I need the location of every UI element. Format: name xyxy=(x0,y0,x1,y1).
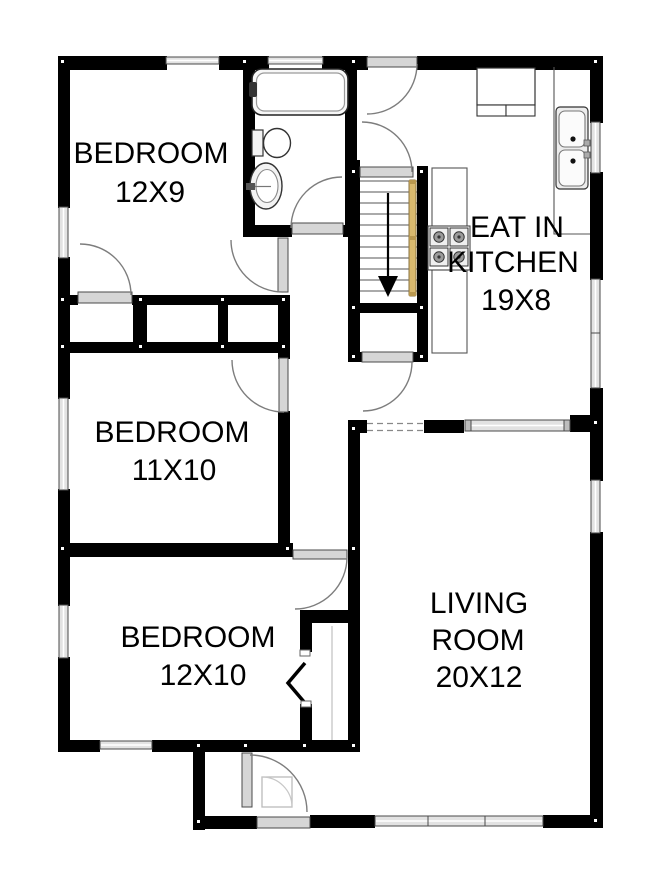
down-arrow-icon xyxy=(378,193,398,297)
bedroom-middle-size: 11X10 xyxy=(132,454,217,487)
window-bedroom-bottom-left xyxy=(59,605,68,658)
upper-cabinet xyxy=(477,68,535,116)
bathroom-door xyxy=(291,177,343,234)
living-room-size: 20X12 xyxy=(436,661,523,694)
handrail xyxy=(409,180,416,296)
bifold-closet-door xyxy=(288,650,311,707)
kitchen-label-line1: EAT IN xyxy=(470,211,564,244)
toilet xyxy=(252,129,291,158)
window-living-right xyxy=(591,480,600,533)
bedroom-top-entry-door xyxy=(231,238,288,292)
bedroom-bottom-size: 12X10 xyxy=(160,659,247,692)
bedroom-bottom-door xyxy=(293,550,347,609)
dashed-opening-hall-living xyxy=(367,424,424,431)
bedroom-top-label: BEDROOM xyxy=(73,137,228,170)
bedroom-top-size: 12X9 xyxy=(115,176,185,209)
living-room-label-line1: LIVING xyxy=(430,587,528,620)
double-kitchen-sink xyxy=(556,107,590,189)
opening-kitchen-living xyxy=(465,420,570,431)
bedroom-top-closet-door xyxy=(78,244,132,303)
bedroom-bottom-label: BEDROOM xyxy=(120,621,275,654)
window-bedroom-top-1 xyxy=(166,57,219,64)
window-bedroom-top-left xyxy=(59,207,68,258)
staircase-down xyxy=(332,180,417,740)
window-living-bottom xyxy=(375,816,543,826)
kitchen-size: 19X8 xyxy=(481,284,551,317)
window-dining-right xyxy=(591,279,600,388)
window-bedroom-bottom xyxy=(100,741,152,749)
kitchen-label-line2: KITCHEN xyxy=(447,246,579,279)
back-door xyxy=(367,57,417,114)
living-room-label-line2: ROOM xyxy=(431,624,524,657)
window-kitchen-right xyxy=(591,122,600,173)
floor-plan-drawing: BEDROOM 12X9 BEDROOM 11X10 BEDROOM 12X10… xyxy=(0,0,659,890)
bathroom-fixtures xyxy=(246,69,348,209)
window-bathroom xyxy=(268,57,323,64)
bathtub xyxy=(249,69,348,115)
bedroom-middle-label: BEDROOM xyxy=(94,416,249,449)
floor-plan: BEDROOM 12X9 BEDROOM 11X10 BEDROOM 12X10… xyxy=(0,0,659,890)
stairs-bottom-door xyxy=(362,352,413,411)
window-bedroom-middle-left xyxy=(59,398,68,490)
stairs-top-door xyxy=(360,122,413,177)
bedroom-middle-door xyxy=(232,358,288,412)
